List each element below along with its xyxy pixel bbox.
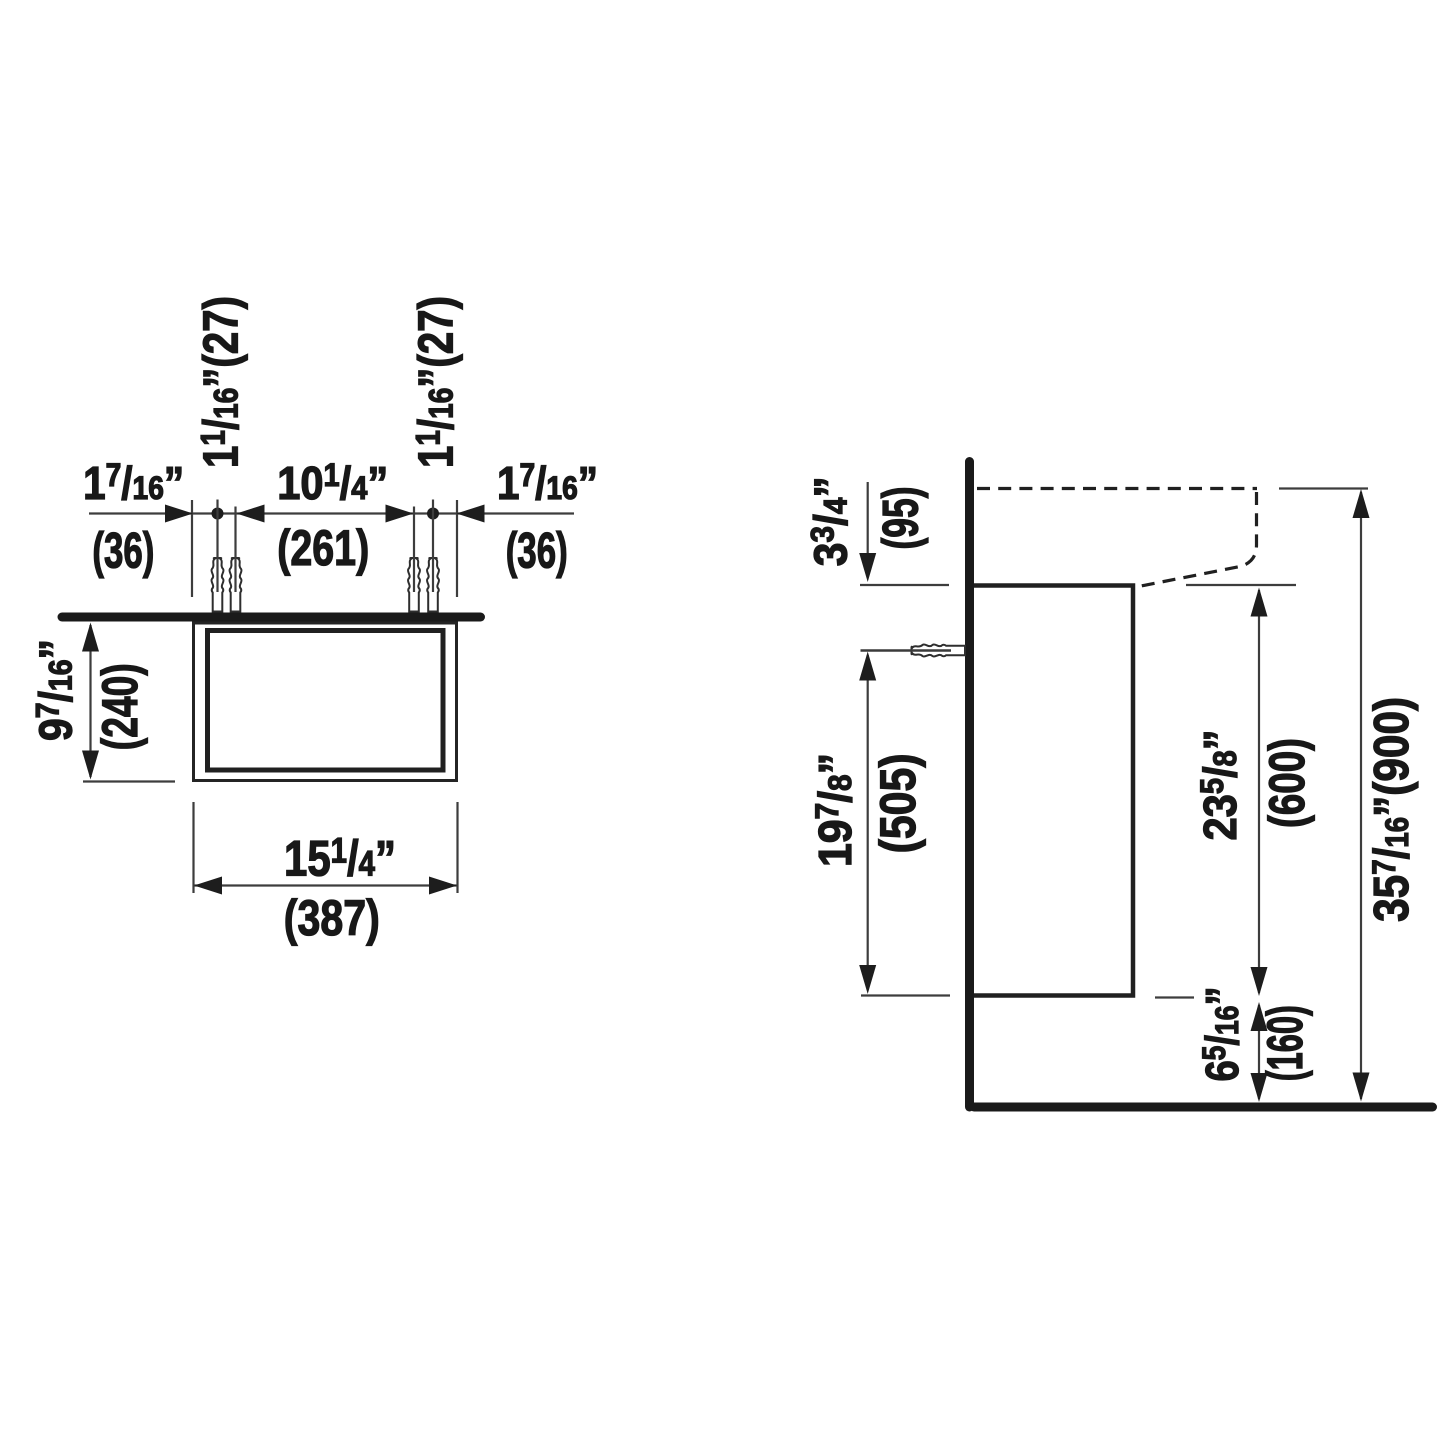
svg-text:(600): (600) (1259, 738, 1315, 828)
svg-text:357/16”(900): 357/16”(900) (1365, 697, 1419, 922)
svg-text:(36): (36) (92, 523, 154, 579)
svg-text:(387): (387) (284, 890, 380, 946)
svg-text:(36): (36) (506, 523, 568, 579)
svg-text:(261): (261) (277, 520, 369, 576)
svg-text:(240): (240) (92, 663, 148, 750)
svg-text:(160): (160) (1257, 1005, 1313, 1081)
svg-text:(95): (95) (873, 487, 929, 550)
svg-text:33/4”: 33/4” (805, 476, 857, 566)
svg-text:(505): (505) (870, 753, 926, 853)
